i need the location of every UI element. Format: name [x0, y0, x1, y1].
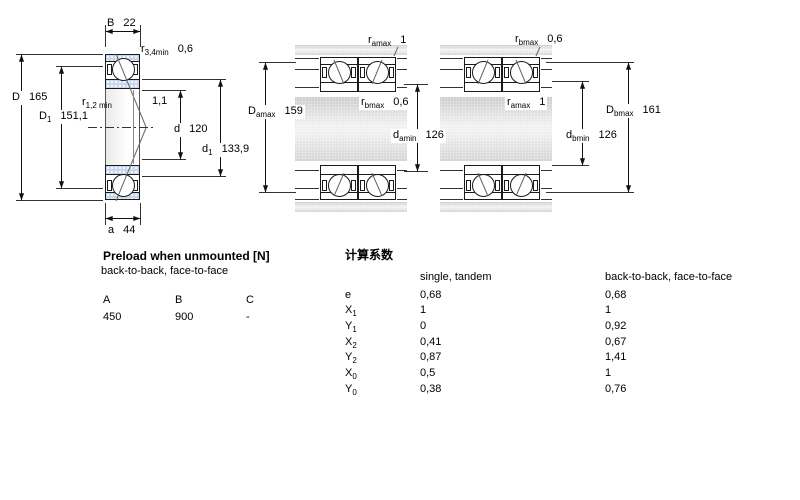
factor-row-y2: Y20,871,41 — [345, 351, 785, 365]
ball — [510, 61, 533, 84]
ball — [510, 174, 533, 197]
cage — [533, 180, 538, 191]
preload-title: Preload when unmounted [N] — [103, 250, 270, 263]
ball — [112, 58, 135, 81]
preload-header-b: B — [175, 294, 182, 307]
factors-title: 计算系数 — [345, 249, 393, 262]
cage — [495, 180, 500, 191]
bearing-cross-section — [320, 165, 358, 200]
factor-row-x0: X00,51 — [345, 367, 785, 381]
ball — [112, 174, 135, 197]
dim-r12-value: 1,1 — [152, 95, 167, 108]
ball — [366, 174, 389, 197]
bearing-cross-section — [502, 165, 540, 200]
ball — [472, 61, 495, 84]
cage — [533, 67, 538, 78]
dim-r12-name: r1,2 min — [82, 96, 112, 110]
dim-d: d120 — [172, 123, 209, 137]
factor-row-y0: Y00,380,76 — [345, 383, 785, 397]
cage — [351, 67, 356, 78]
factors-col2-header: back-to-back, face-to-face — [605, 271, 732, 284]
dim-rbmax: rbmax0,6 — [359, 96, 411, 110]
cage — [360, 180, 365, 191]
dim-D: D165 — [10, 91, 49, 105]
dim-Damax: Damax159 — [246, 105, 305, 119]
bearing-cross-section — [105, 54, 140, 89]
dim-ramax: ramax1 — [368, 34, 406, 48]
cage — [351, 180, 356, 191]
ball — [328, 61, 351, 84]
dim-ramax: ramax1 — [505, 96, 547, 110]
cage — [466, 67, 471, 78]
dim-rbmax: rbmax0,6 — [515, 33, 563, 47]
factor-row-x2: X20,410,67 — [345, 336, 785, 350]
dim-r34: r3,4min0,6 — [141, 43, 193, 57]
preload-value-a: 450 — [103, 311, 121, 324]
dim-dbmin: dbmin126 — [564, 129, 619, 143]
bearing-cross-section — [464, 57, 502, 92]
cage — [504, 67, 509, 78]
bearing-cross-section — [464, 165, 502, 200]
bearing-cross-section — [358, 57, 396, 92]
dim-damin: damin126 — [391, 129, 446, 143]
ball — [366, 61, 389, 84]
bearing-cross-section — [502, 57, 540, 92]
ball — [328, 174, 351, 197]
cage — [360, 67, 365, 78]
cage — [495, 67, 500, 78]
bearing-cross-section — [105, 165, 140, 200]
ball — [472, 174, 495, 197]
dim-Dbmax: Dbmax161 — [604, 104, 663, 118]
preload-header-a: A — [103, 294, 110, 307]
housing-block-bottom — [295, 202, 407, 212]
dim-d1: d1133,9 — [200, 143, 251, 157]
preload-header-c: C — [246, 294, 254, 307]
preload-value-b: 900 — [175, 311, 193, 324]
dim-a: a44 — [108, 224, 135, 238]
housing-block-bottom — [440, 202, 552, 212]
dim-D1: D1151,1 — [37, 110, 90, 124]
cage — [322, 67, 327, 78]
preload-subtitle: back-to-back, face-to-face — [101, 265, 228, 278]
dim-B: B22 — [107, 17, 136, 31]
cage — [322, 180, 327, 191]
cage — [389, 180, 394, 191]
cage — [504, 180, 509, 191]
factor-row-x1: X111 — [345, 304, 785, 318]
bearing-cross-section — [358, 165, 396, 200]
factor-row-e: e0,680,68 — [345, 289, 785, 303]
preload-value-c: - — [246, 311, 250, 324]
factors-col1-header: single, tandem — [420, 271, 492, 284]
bearing-spec-page: B22 r3,4min0,6 D165 D1151,1 r1,2 min 1,1… — [0, 0, 800, 500]
factor-row-y1: Y100,92 — [345, 320, 785, 334]
cage — [389, 67, 394, 78]
cage — [466, 180, 471, 191]
bearing-cross-section — [320, 57, 358, 92]
